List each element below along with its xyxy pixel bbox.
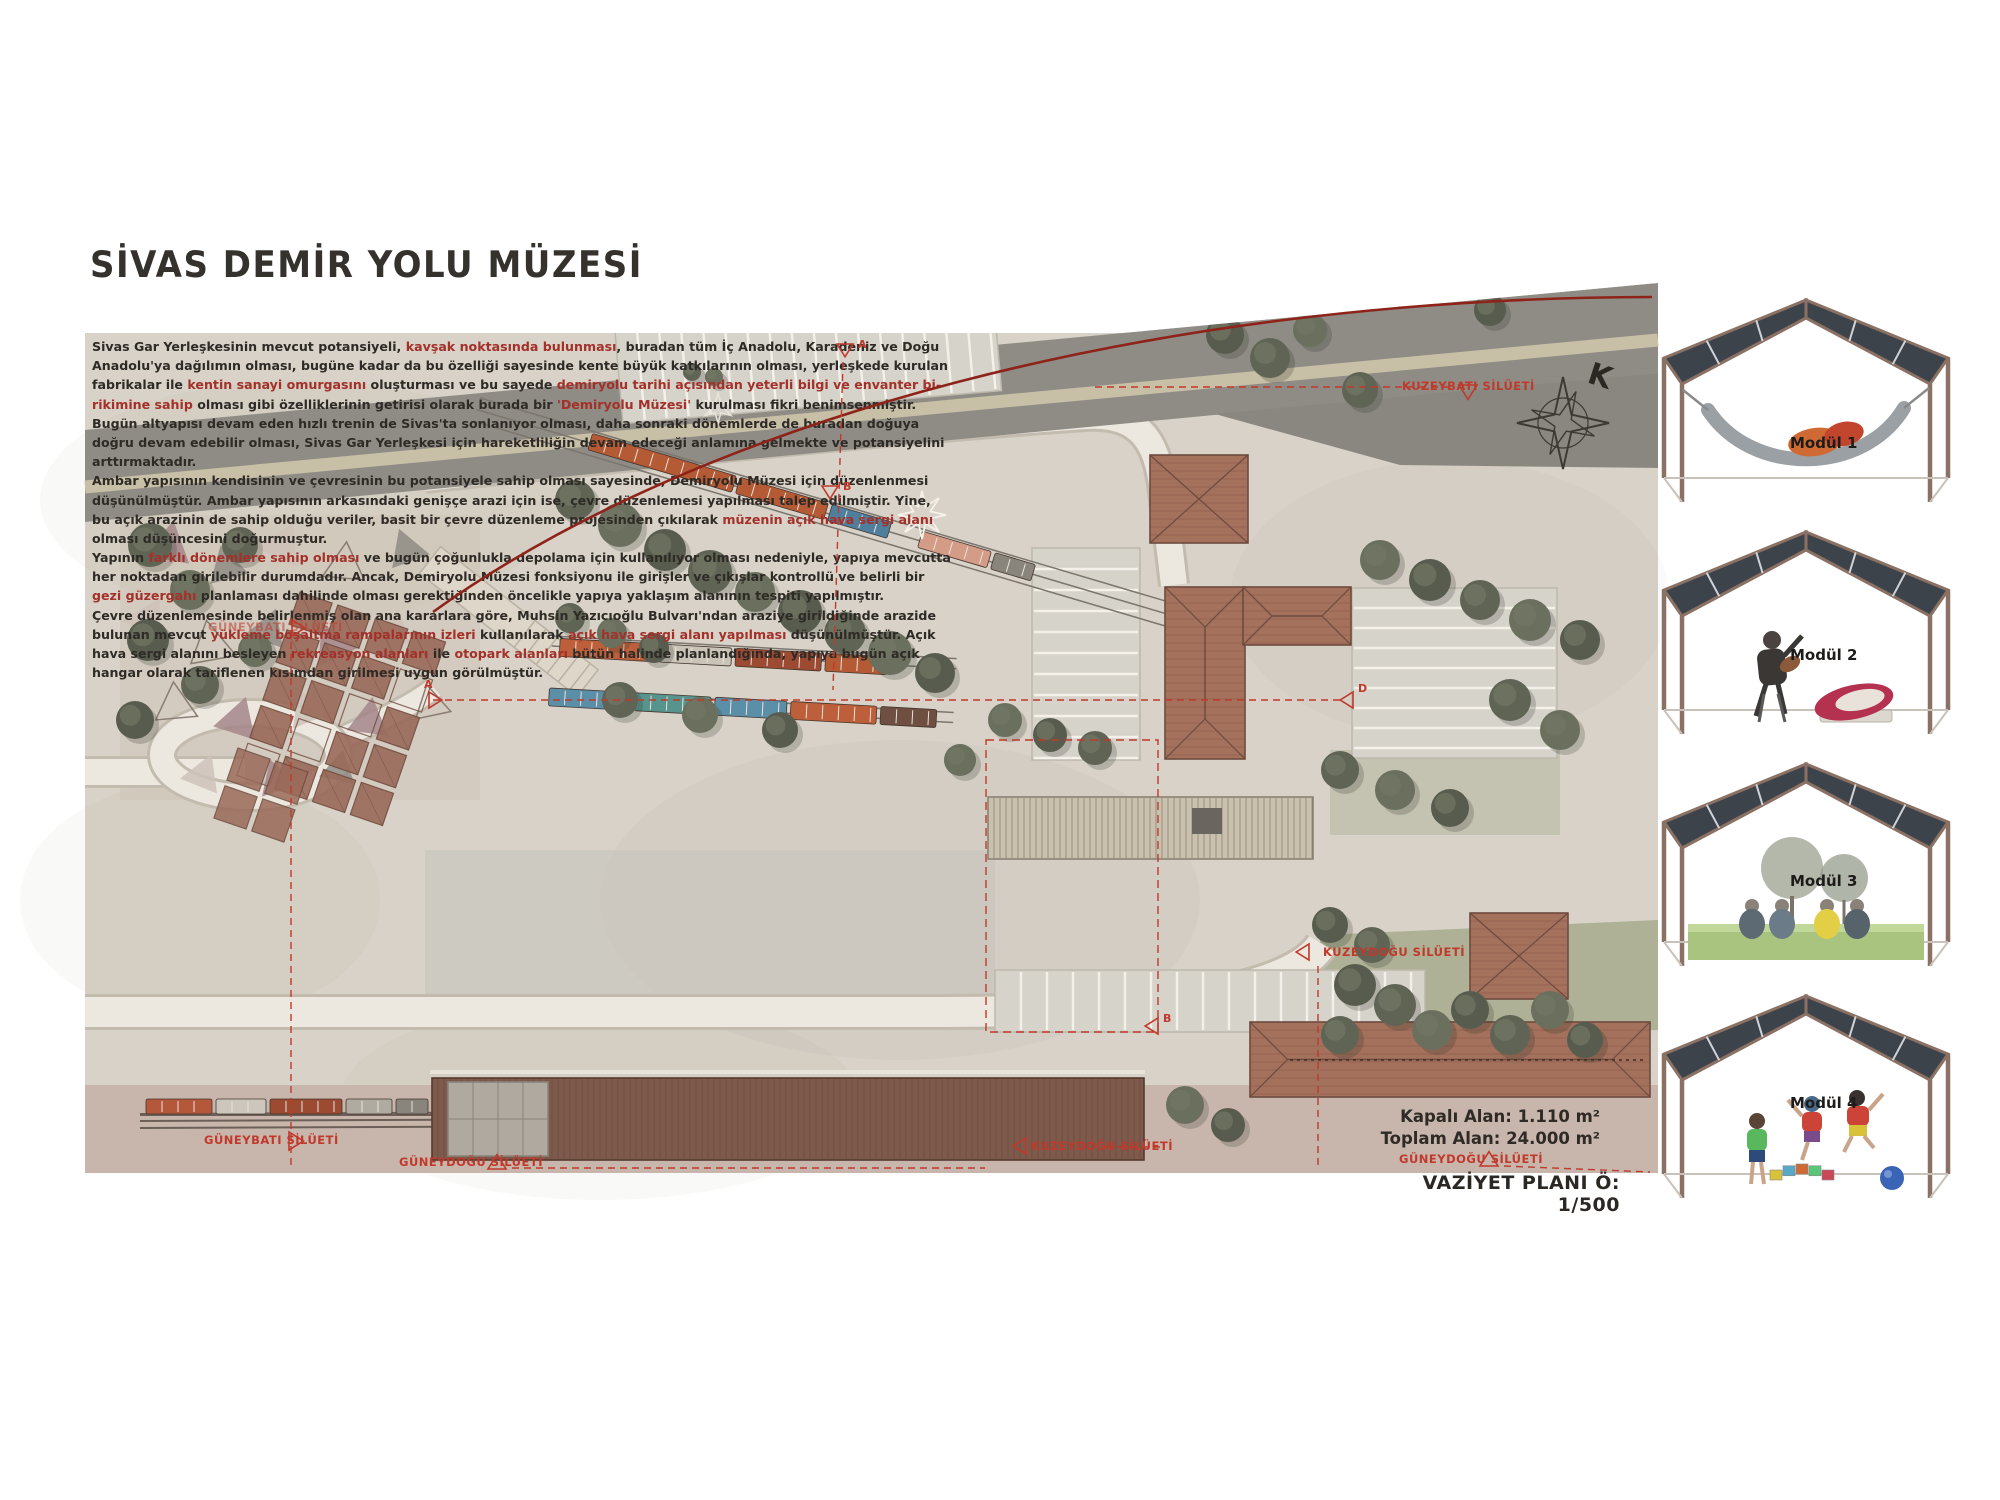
stat-value: 1.110 m² [1518, 1107, 1600, 1126]
building-hip-roof [1470, 913, 1568, 999]
intro-line: Anadolu'ya dağılımın olması, bugüne kada… [92, 356, 1044, 375]
intro-line: rikimine sahip olması gibi özelliklerini… [92, 395, 1044, 414]
module-illustration [1652, 292, 1960, 524]
module-label: Modül 1 [1790, 434, 1857, 452]
stat-row: Toplam Alan: 24.000 m² [1380, 1128, 1600, 1150]
intro-line: arttırmaktadır. [92, 452, 1044, 471]
pergola-canopy [988, 797, 1313, 859]
building-hip-roof [1165, 587, 1245, 759]
intro-line: doğru devam edebilir olması, Sivas Gar Y… [92, 433, 1044, 452]
intro-line: düşünülmüştür. Ambar yapısının arkasında… [92, 491, 1044, 510]
module-scene-picnic [1688, 837, 1924, 960]
module-label: Modül 2 [1790, 646, 1857, 664]
plan-scale-note: VAZİYET PLANI Ö: 1/500 [1378, 1172, 1620, 1216]
building-hip-roof [1150, 455, 1248, 543]
module-card-1: Modül 1 [1652, 292, 1960, 524]
stat-row: Kapalı Alan: 1.110 m² [1380, 1106, 1600, 1128]
stat-value: 24.000 m² [1506, 1129, 1600, 1148]
intro-line: hangar olarak tariflenen kısımdan girilm… [92, 663, 1044, 682]
intro-line: fabrikalar ile kentin sanayi omurgasını … [92, 375, 1044, 394]
intro-paragraph: Sivas Gar Yerleşkesinin mevcut potansiye… [92, 337, 1044, 682]
module-label: Modül 3 [1790, 872, 1857, 890]
page-title: SİVAS DEMİR YOLU MÜZESİ [90, 244, 643, 286]
module-illustration [1652, 524, 1960, 756]
area-stats: Kapalı Alan: 1.110 m² Toplam Alan: 24.00… [1380, 1106, 1600, 1150]
intro-line: hava sergi alanını besleyen rekreasyon a… [92, 644, 1044, 663]
intro-line: Ambar yapısının kendisinin ve çevresinin… [92, 471, 1044, 490]
building-hip-roof [1243, 587, 1351, 645]
module-card-3: Modül 3 [1652, 756, 1960, 988]
intro-line: Sivas Gar Yerleşkesinin mevcut potansiye… [92, 337, 1044, 356]
intro-line: Yapının farklı dönemlere sahip olması ve… [92, 548, 1044, 567]
intro-line: olması düşüncesini doğurmuştur. [92, 529, 1044, 548]
stat-label: Toplam Alan: [1381, 1129, 1501, 1148]
intro-line: bulunan mevcut yükleme boşaltma rampalar… [92, 625, 1044, 644]
presentation-board: K SİVAS DEMİR YOLU MÜZESİ Sivas Gar Yerl… [0, 0, 2000, 1500]
intro-line: her noktadan girilebilir durumdadır. Anc… [92, 567, 1044, 586]
module-label: Modül 4 [1790, 1094, 1857, 1112]
module-card-4: Modül 4 [1652, 988, 1960, 1220]
intro-line: Bugün altyapısı devam eden hızlı trenin … [92, 414, 1044, 433]
warehouse-annex [448, 1082, 548, 1156]
module-card-2: Modül 2 [1652, 524, 1960, 756]
intro-line: bu açık arazinin de sahip olduğu veriler… [92, 510, 1044, 529]
intro-line: gezi güzergahı planlaması dahilinde olma… [92, 586, 1044, 605]
intro-line: Çevre düzenlemesinde belirlenmiş olan an… [92, 606, 1044, 625]
stat-label: Kapalı Alan: [1400, 1107, 1512, 1126]
